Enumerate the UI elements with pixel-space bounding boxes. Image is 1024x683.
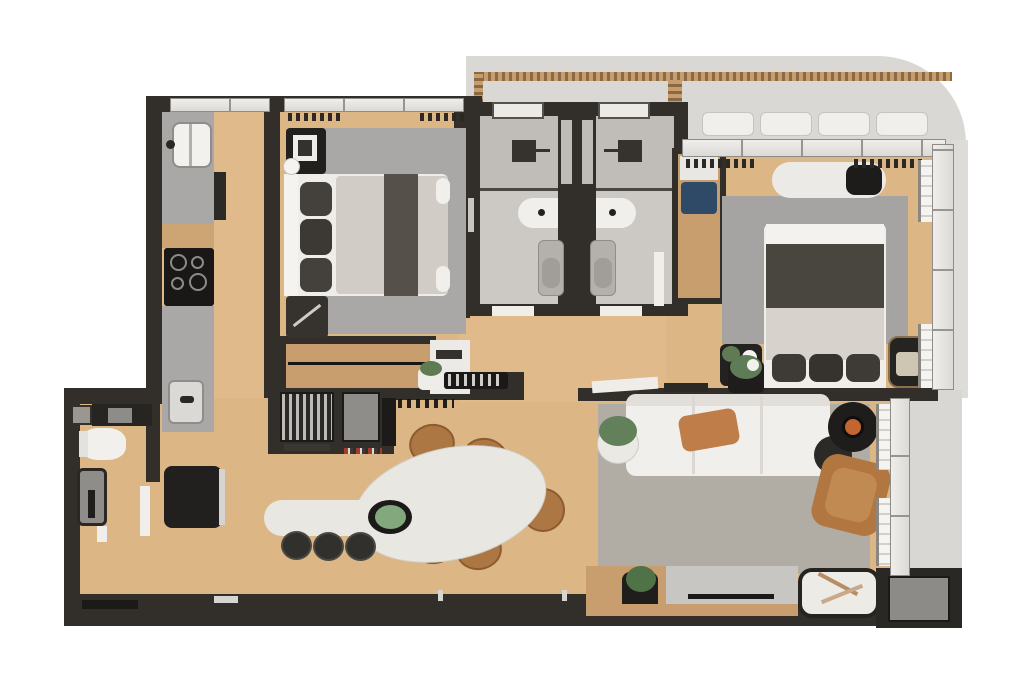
utility-louver-unit (280, 392, 334, 442)
island-bowl-plant (375, 505, 406, 529)
curtain-bedroom2-right-top (918, 160, 933, 222)
bedroom1-frame-art-inner (298, 140, 312, 156)
entry-door-leaf (82, 600, 138, 609)
closet2-clothes-blue (681, 182, 717, 214)
bedroom2-desk-chair (846, 165, 882, 195)
lavabo-toilet-tank (79, 431, 88, 457)
kitchen-fridge-edge (219, 469, 225, 525)
bedroom2-bed-foot-fold (766, 224, 884, 246)
window-bedroom1 (284, 98, 464, 112)
cooktop-burner-1 (170, 254, 187, 271)
bedroom1-lamp (283, 158, 300, 175)
bedroom2-pillow-3 (846, 354, 880, 382)
bath-center-niche-right (582, 120, 593, 184)
bathroom2-toilet-seat (594, 258, 612, 288)
closet2-shoe-shelf-2 (680, 258, 718, 298)
bathroom2-shower-glass (596, 188, 674, 191)
island-stool-2 (313, 532, 344, 561)
bathroom2-shower-arm (604, 149, 620, 152)
window-kitchen (170, 98, 270, 112)
bottom-door-tick-2 (562, 590, 567, 601)
window-bathroom2 (598, 102, 650, 119)
island-stool-1 (281, 531, 312, 560)
utility-shelf-items (284, 444, 330, 451)
ac-grate (888, 576, 950, 622)
closet1-interior (286, 344, 430, 388)
bathroom1-shower-glass (480, 188, 558, 191)
entry-frame-mark (214, 596, 238, 603)
floor-plan-canvas (0, 0, 1024, 683)
bedroom2-pillow-1 (772, 354, 806, 382)
lavabo-washer-slot (88, 490, 95, 518)
console-plant-ball (747, 359, 759, 371)
bar-column-shelf (382, 398, 396, 446)
ac-unit-1 (702, 112, 754, 136)
bathroom2-door (600, 306, 642, 316)
bedroom1-pillow-1 (300, 182, 332, 216)
bar-vase-plant (420, 361, 442, 376)
living-table-decor (842, 416, 864, 438)
tv-panel (666, 566, 798, 608)
ac-unit-4 (876, 112, 928, 136)
island-stool-3 (345, 532, 376, 561)
bar-jars-row (398, 399, 454, 408)
wall-kitchen-left (146, 96, 162, 396)
hall-door-leaf (97, 526, 107, 542)
lavabo-door (140, 486, 150, 536)
party-wall-hatch-top (474, 72, 952, 81)
bedroom2-blanket (766, 244, 884, 308)
kitchen-faucet (166, 140, 175, 149)
curtain-bedroom1-left (288, 113, 342, 121)
closet1-side-item (436, 350, 462, 359)
towel-bar-left (468, 198, 474, 232)
closet1-rail (288, 362, 428, 365)
console-books (664, 383, 708, 392)
living-side-table-plant (599, 416, 637, 446)
sofa-seam-2 (760, 396, 763, 474)
bedroom2-duvet (766, 308, 884, 360)
curtain-bedroom1-right (420, 113, 466, 121)
bedroom2-nightstand-right-tray (896, 352, 920, 376)
sofa-back-shade (626, 394, 830, 406)
cooktop-burner-2 (191, 256, 204, 269)
kitchen-counter-wood (162, 224, 214, 248)
building-exterior-right (910, 390, 962, 576)
kitchen-fridge (164, 466, 222, 528)
tv-plant (626, 566, 656, 592)
lavabo-sink-inset (108, 408, 132, 423)
window-bathroom1 (492, 102, 544, 119)
bedroom1-throw-fold-top (436, 178, 450, 204)
bathroom2-faucet (609, 209, 616, 216)
curtain-bedroom2-top-right (854, 159, 926, 168)
bathroom2-shower-head (618, 140, 642, 162)
cooktop-burner-4 (189, 273, 207, 291)
bedroom1-pillow-3 (300, 258, 332, 292)
bathroom1-shower-arm (534, 149, 550, 152)
bathroom1-faucet (538, 209, 545, 216)
bottom-door-tick-1 (438, 590, 443, 601)
curtain-bedroom2-top-left (686, 159, 758, 168)
bathroom1-toilet-seat (542, 258, 560, 288)
tv-screen (688, 594, 774, 599)
bar-bottles (448, 374, 504, 386)
bedroom1-headboard (284, 174, 298, 296)
window-bedroom2-right (932, 144, 954, 390)
bedroom1-blanket (384, 174, 418, 296)
building-edge-right-upper (952, 140, 968, 398)
kitchen-sink (172, 122, 212, 168)
bedroom2-pillow-2 (809, 354, 843, 382)
cooktop-burner-3 (171, 277, 184, 290)
utility-books (344, 448, 382, 454)
window-bedroom2-top (682, 139, 946, 157)
bedroom1-pillow-2 (300, 219, 332, 255)
bathroom1-shower-head (512, 140, 536, 162)
bath-center-niche-left (561, 120, 572, 184)
window-living-right (890, 398, 910, 576)
ac-unit-2 (760, 112, 812, 136)
closet2-shoe-shelf-1 (680, 216, 718, 256)
slat-deco-strip (586, 604, 798, 616)
utility-felt-panel (342, 392, 380, 442)
ac-unit-3 (818, 112, 870, 136)
bedroom1-throw-fold-bottom (436, 266, 450, 292)
kitchen-sink-divider (189, 124, 192, 166)
curtain-bedroom2-right-bottom (918, 324, 933, 388)
kitchen-knife-strip (214, 172, 226, 220)
bathroom-door-open-leaf (654, 252, 664, 306)
kitchen-faucet-2 (180, 396, 194, 403)
bathroom1-door (492, 306, 534, 316)
lavabo-side-sink (71, 405, 92, 425)
